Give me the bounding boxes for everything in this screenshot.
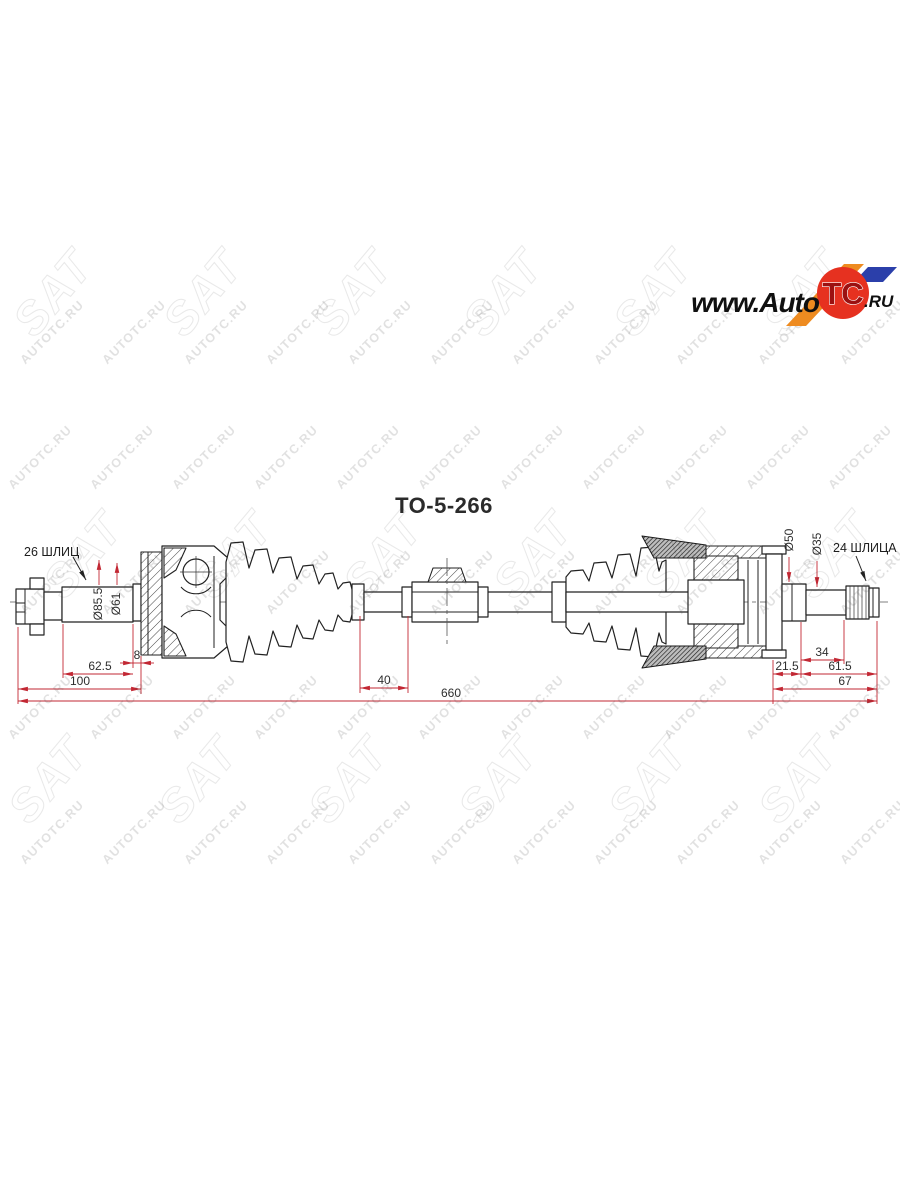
watermark-text: AUTOTC.RU (579, 422, 648, 491)
dim-34: 34 (815, 645, 829, 659)
logo-www-text: www.Auto (691, 287, 820, 318)
watermark-text: AUTOTC.RU (333, 672, 402, 741)
watermark-text: AUTOTC.RU (661, 422, 730, 491)
watermark-text: AUTOTC.RU (661, 672, 730, 741)
dim-67: 67 (838, 674, 852, 688)
dim-62-5: 62.5 (88, 659, 112, 673)
logo-tc-text: TC (822, 276, 863, 311)
watermark-text: AUTOTC.RU (837, 797, 900, 866)
watermark-sat-logo: SAT (152, 238, 254, 345)
watermark-text: AUTOTC.RU (5, 672, 74, 741)
watermark-text: AUTOTC.RU (579, 672, 648, 741)
watermark-text: AUTOTC.RU (99, 797, 168, 866)
watermark-text: AUTOTC.RU (87, 672, 156, 741)
part-number: TO-5-266 (395, 493, 493, 518)
watermark-text: AUTOTC.RU (497, 672, 566, 741)
watermark-text: AUTOTC.RU (415, 422, 484, 491)
watermark-text: AUTOTC.RU (673, 797, 742, 866)
watermark-text: AUTOTC.RU (263, 797, 332, 866)
watermark-text: AUTOTC.RU (263, 297, 332, 366)
product-image: 8 62.5 100 660 40 21.5 34 61.5 67 Ø85.5 … (0, 0, 900, 1200)
watermark-text: AUTOTC.RU (87, 422, 156, 491)
watermark-text: AUTOTC.RU (5, 422, 74, 491)
right-boot-clamp (552, 582, 566, 622)
tripod-roller-bottom (694, 624, 738, 648)
watermark-text: AUTOTC.RU (251, 422, 320, 491)
dim-dia-50: Ø50 (782, 528, 796, 551)
watermark-text: AUTOTC.RU (99, 297, 168, 366)
watermark-text: AUTOTC.RU (497, 422, 566, 491)
watermark-text: AUTOTC.RU (743, 672, 812, 741)
dim-61-5: 61.5 (828, 659, 852, 673)
dim-8: 8 (134, 648, 141, 662)
watermark-text: AUTOTC.RU (509, 797, 578, 866)
watermark-text: AUTOTC.RU (251, 672, 320, 741)
watermark-text: AUTOTC.RU (333, 422, 402, 491)
watermark-text: AUTOTC.RU (169, 422, 238, 491)
watermark-text: AUTOTC.RU (415, 672, 484, 741)
logo-ru-text: .RU (864, 292, 894, 311)
axle-technical-drawing: 8 62.5 100 660 40 21.5 34 61.5 67 Ø85.5 … (0, 0, 900, 1200)
dim-21-5: 21.5 (775, 659, 799, 673)
watermark-text: AUTOTC.RU (825, 422, 894, 491)
watermark-text: AUTOTC.RU (825, 672, 894, 741)
watermark-sat-logo: SAT (447, 725, 549, 832)
watermark-text: AUTOTC.RU (743, 422, 812, 491)
